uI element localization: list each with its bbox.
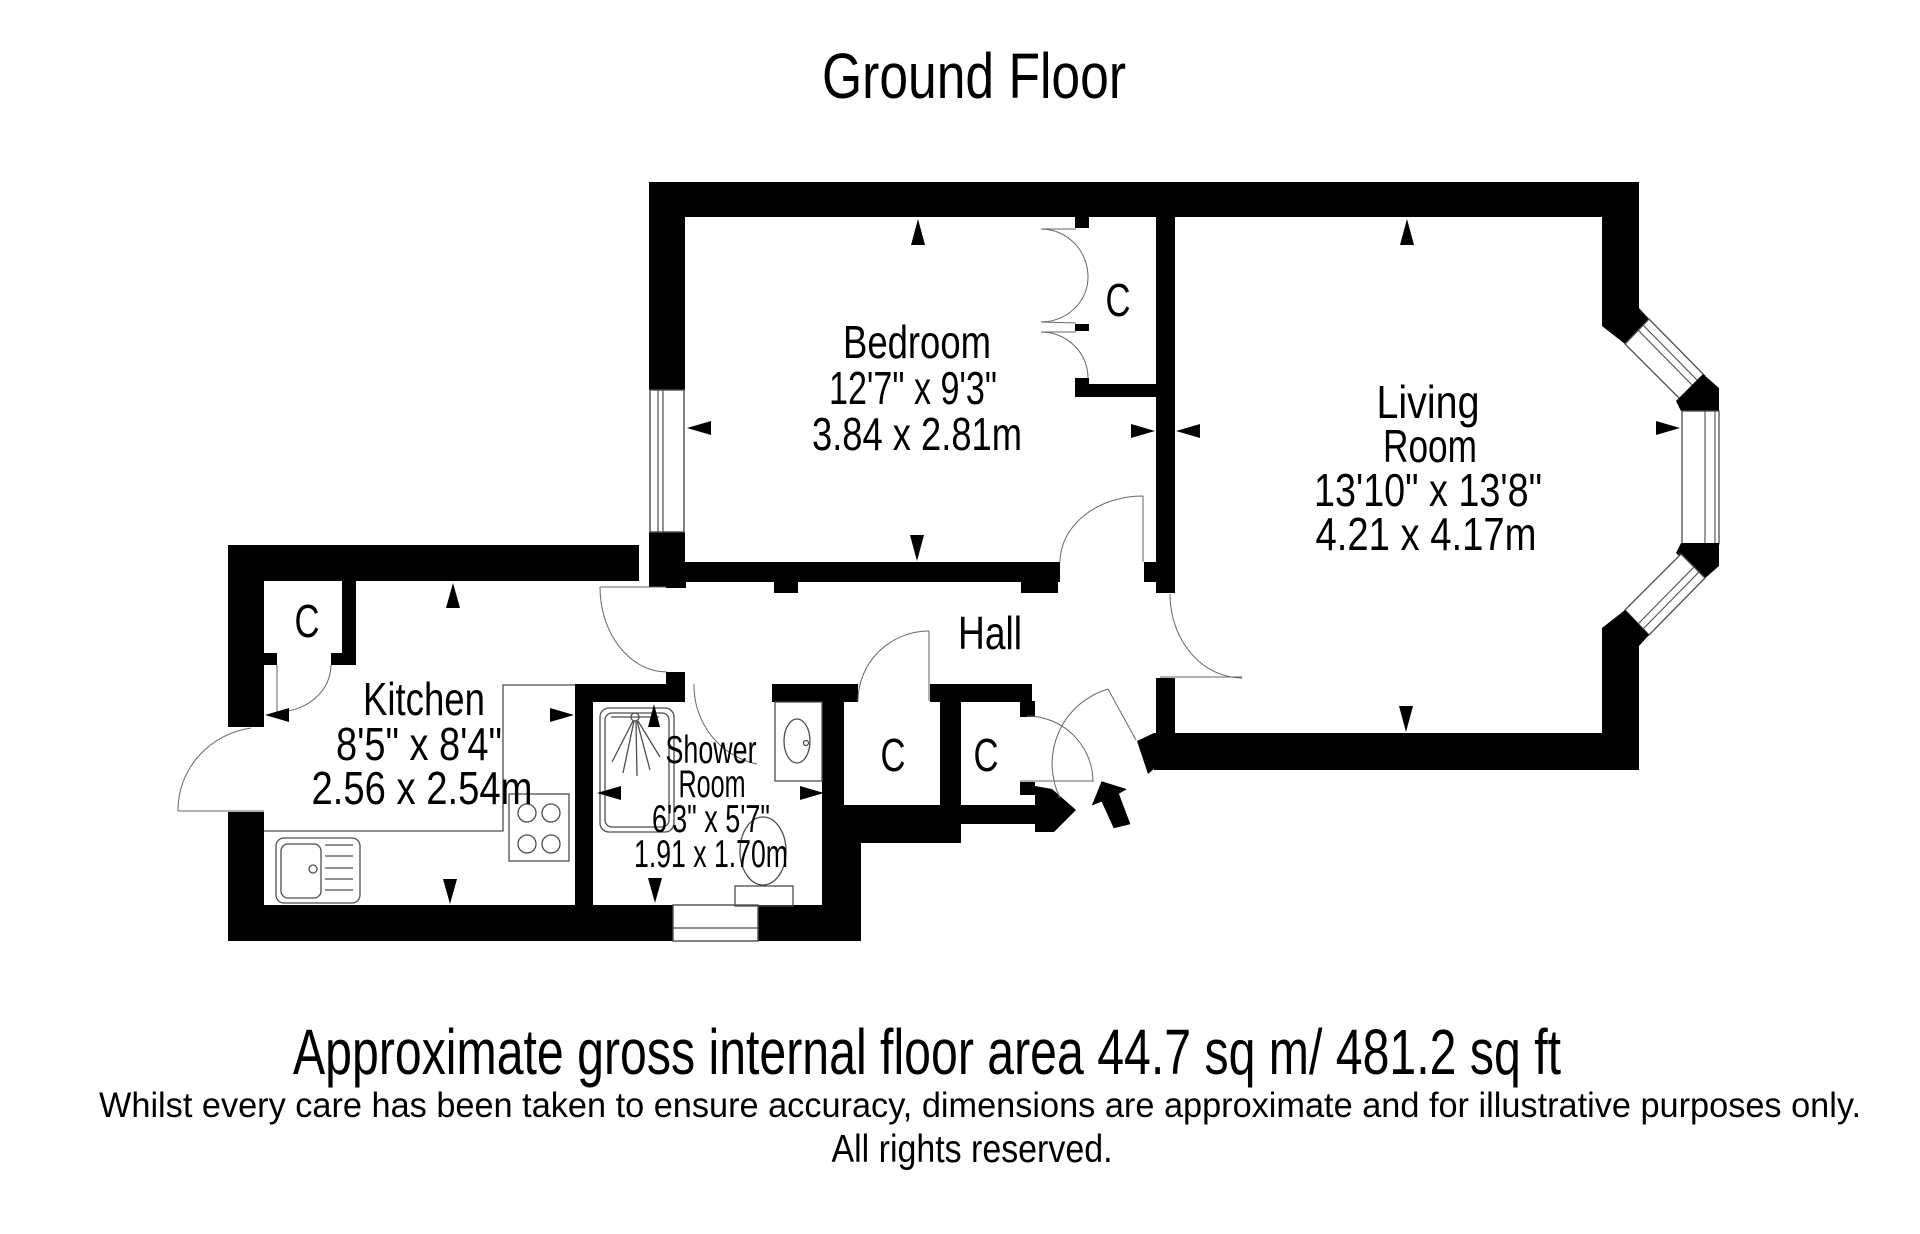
svg-text:12'7" x 9'3": 12'7" x 9'3" [829,362,997,414]
svg-text:3.84 x 2.81m: 3.84 x 2.81m [812,408,1022,460]
svg-text:C: C [974,729,999,781]
svg-text:2.56 x 2.54m: 2.56 x 2.54m [312,762,533,814]
svg-text:Bedroom: Bedroom [843,316,991,368]
svg-text:C: C [1106,274,1131,326]
svg-text:All rights reserved.: All rights reserved. [832,1128,1113,1171]
svg-text:Whilst every care has been tak: Whilst every care has been taken to ensu… [99,1086,1861,1125]
svg-text:4.21 x 4.17m: 4.21 x 4.17m [1316,508,1537,560]
svg-text:C: C [295,595,320,647]
svg-text:Hall: Hall [958,607,1022,659]
svg-text:Ground Floor: Ground Floor [822,40,1126,112]
svg-text:C: C [881,729,906,781]
svg-text:1.91 x 1.70m: 1.91 x 1.70m [634,833,788,876]
svg-text:Approximate gross internal flo: Approximate gross internal floor area 44… [293,1016,1561,1088]
